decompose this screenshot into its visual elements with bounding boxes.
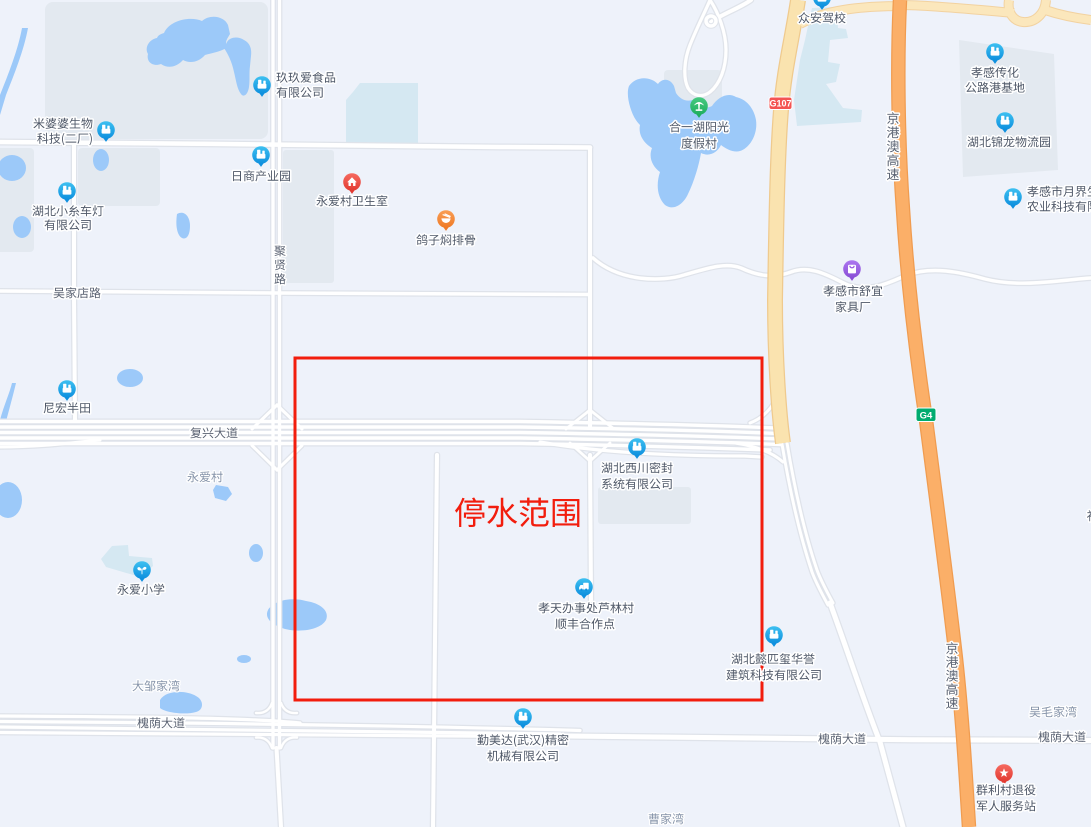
svg-text:G4: G4 [920,411,933,422]
svg-text:G107: G107 [769,99,791,109]
